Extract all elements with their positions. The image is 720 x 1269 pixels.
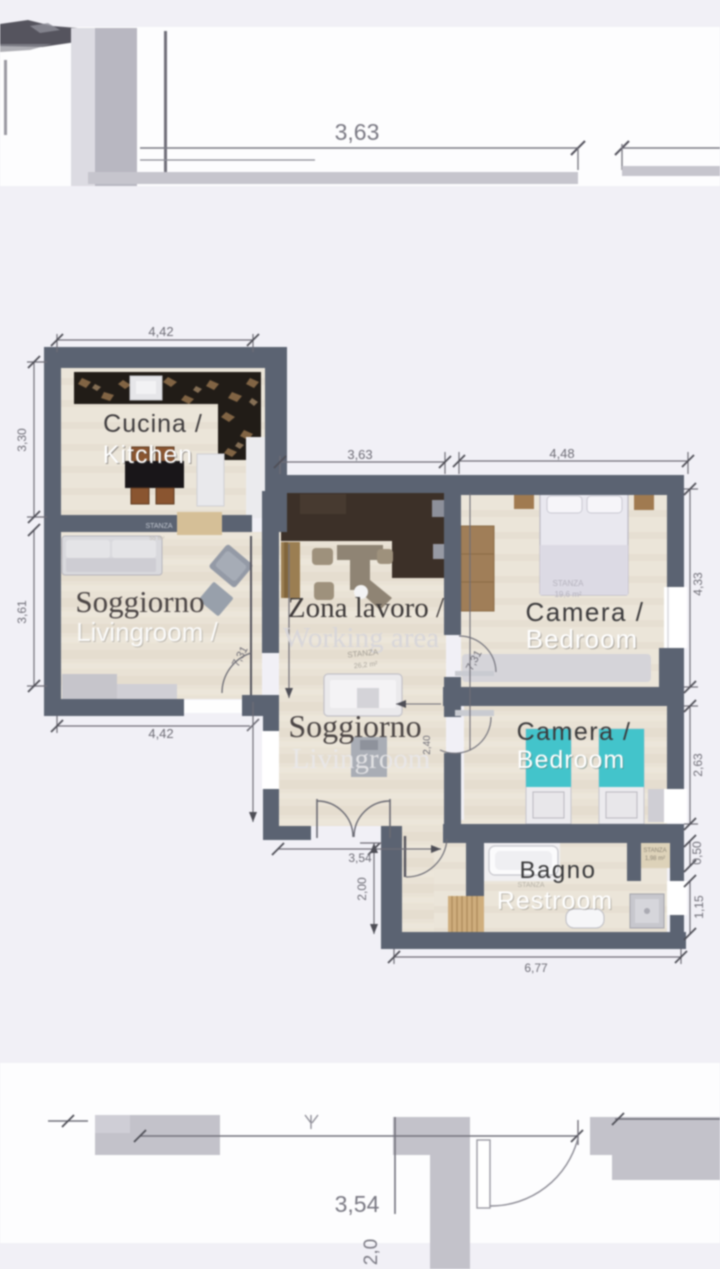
svg-text:2,0: 2,0: [361, 1239, 382, 1265]
svg-text:Livingroom: Livingroom: [292, 743, 431, 775]
svg-text:3,63: 3,63: [347, 447, 372, 462]
svg-text:2,00: 2,00: [355, 877, 369, 901]
svg-text:3,54: 3,54: [348, 851, 372, 865]
svg-text:3,61: 3,61: [15, 600, 29, 624]
svg-text:6,77: 6,77: [524, 961, 548, 975]
svg-text:55 m²: 55 m²: [149, 536, 164, 542]
svg-text:Camera /: Camera /: [526, 597, 645, 627]
svg-text:STANZA: STANZA: [553, 579, 585, 588]
svg-text:4,42: 4,42: [148, 324, 173, 339]
svg-text:Camera /: Camera /: [517, 718, 632, 746]
svg-text:0,50: 0,50: [690, 841, 704, 865]
svg-text:Cucina /: Cucina /: [103, 410, 203, 438]
svg-text:3,30: 3,30: [15, 428, 29, 452]
svg-text:STANZA: STANZA: [643, 848, 666, 854]
svg-text:2,63: 2,63: [691, 753, 705, 777]
svg-text:4,33: 4,33: [691, 572, 705, 596]
svg-text:Livingroom /: Livingroom /: [76, 617, 218, 647]
svg-text:STANZA: STANZA: [145, 523, 172, 530]
svg-text:Bedroom: Bedroom: [526, 624, 639, 654]
svg-text:Soggiorno: Soggiorno: [75, 584, 204, 619]
svg-text:Soggiorno: Soggiorno: [288, 708, 421, 744]
svg-text:4,48: 4,48: [549, 446, 574, 461]
svg-text:3,54: 3,54: [335, 1191, 380, 1217]
svg-text:1,98 m²: 1,98 m²: [645, 856, 665, 862]
svg-text:3,63: 3,63: [335, 119, 380, 145]
svg-text:1,15: 1,15: [692, 895, 706, 919]
svg-text:4,42: 4,42: [148, 726, 173, 741]
svg-text:Kitchen: Kitchen: [103, 441, 193, 469]
svg-text:Restroom: Restroom: [497, 887, 613, 915]
svg-text:Bedroom: Bedroom: [517, 746, 625, 774]
svg-text:Zona lavoro /: Zona lavoro /: [288, 592, 445, 624]
svg-text:Bagno: Bagno: [520, 857, 597, 884]
